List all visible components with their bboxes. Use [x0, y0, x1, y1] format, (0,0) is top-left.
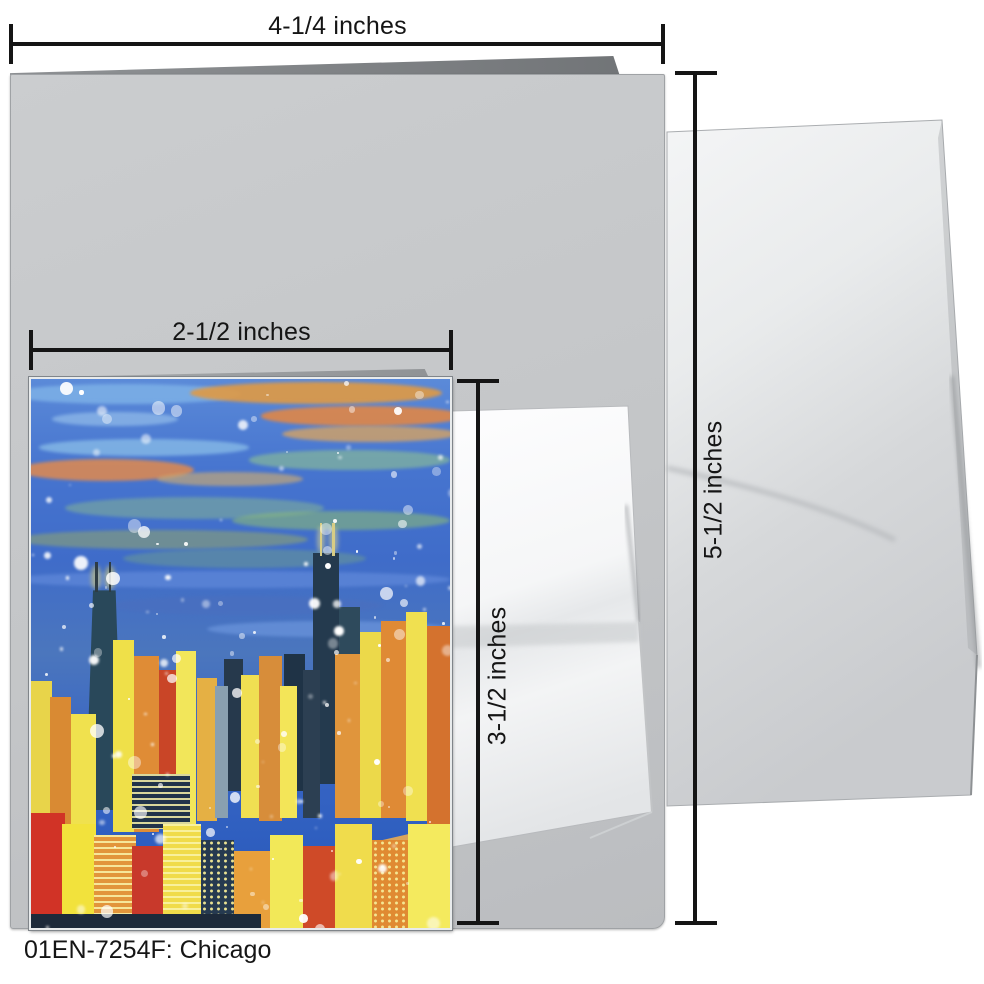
snow-dot — [151, 743, 154, 746]
snow-dot — [62, 625, 66, 629]
snow-dot — [325, 703, 329, 707]
snow-dot — [182, 903, 188, 909]
painting-building — [408, 824, 450, 928]
snow-dot — [393, 557, 396, 560]
snow-dot — [226, 826, 228, 828]
snow-dot — [181, 598, 184, 601]
snow-dot — [296, 799, 301, 804]
envelope-small — [440, 400, 665, 855]
sky-streak — [261, 406, 450, 425]
snow-dot — [416, 576, 426, 586]
product-mockup: 4-1/4 inches 5-1/2 inches 2-1/2 inches 3… — [0, 0, 984, 984]
snow-dot — [334, 871, 337, 874]
snow-dot — [218, 601, 223, 606]
snow-dot — [134, 806, 147, 819]
snow-dot — [432, 467, 441, 476]
snow-dot — [103, 807, 110, 814]
snow-dot — [406, 882, 409, 885]
dimension-line — [10, 42, 665, 46]
snow-dot — [448, 488, 450, 498]
snow-dot — [378, 644, 381, 647]
snow-dot — [270, 815, 273, 818]
snow-dot — [160, 659, 168, 667]
snow-dot — [448, 586, 450, 590]
snow-dot — [320, 523, 332, 535]
snow-dot — [318, 814, 321, 817]
painting-building — [372, 840, 410, 928]
snow-dot — [155, 834, 165, 844]
snow-dot — [74, 556, 88, 570]
snow-dot — [44, 552, 52, 560]
snow-dot — [403, 786, 413, 796]
snow-dot — [230, 792, 241, 803]
snow-dot — [251, 416, 257, 422]
snow-dot — [278, 743, 287, 752]
snow-dot — [394, 629, 405, 640]
snow-dot — [209, 807, 211, 809]
snow-dot — [337, 452, 339, 454]
snow-dot — [220, 519, 222, 521]
snow-dot — [304, 562, 308, 566]
sky-streak — [31, 530, 308, 549]
snow-dot — [438, 455, 442, 459]
snow-dot — [105, 586, 107, 588]
dimension-tick-bottom — [675, 921, 717, 925]
snow-dot — [77, 905, 86, 914]
snow-dot — [45, 673, 48, 676]
snow-dot — [374, 616, 376, 618]
painting-building — [335, 824, 373, 928]
snow-dot — [442, 622, 445, 625]
painting-building — [259, 656, 282, 821]
snow-dot — [146, 611, 149, 614]
dimension-tick-left — [9, 24, 13, 64]
painting-building — [303, 846, 337, 928]
snow-dot — [330, 872, 338, 880]
snow-dot — [344, 381, 349, 386]
sky-streak — [232, 511, 450, 530]
snow-dot — [158, 783, 163, 788]
dimension-label-card-width: 4-1/4 inches — [10, 12, 665, 41]
snow-dot — [99, 820, 105, 826]
snow-dot — [394, 551, 398, 555]
snow-dot — [79, 390, 83, 394]
snow-dot — [89, 603, 94, 608]
snow-dot — [423, 608, 425, 610]
snow-dot — [238, 420, 248, 430]
snow-dot — [328, 638, 339, 649]
product-code: 01EN-7254F: Chicago — [24, 936, 271, 965]
snow-dot — [165, 575, 170, 580]
snow-dot — [141, 434, 152, 445]
snow-dot — [232, 688, 242, 698]
snow-dot — [250, 892, 255, 897]
snow-dot — [349, 406, 355, 412]
snow-dot — [334, 626, 344, 636]
sky-streak — [157, 472, 304, 486]
snow-dot — [184, 542, 188, 546]
snow-dot — [380, 587, 393, 600]
snow-dot — [331, 850, 333, 852]
painting-building — [163, 824, 201, 928]
sky-streak — [190, 382, 441, 404]
snow-dot — [262, 761, 264, 763]
snow-dot — [239, 633, 245, 639]
snow-dot — [400, 599, 408, 607]
snow-dot — [156, 613, 158, 615]
snow-dot — [299, 914, 308, 923]
snow-dot — [250, 868, 252, 870]
painting-building — [280, 686, 297, 818]
snow-dot — [262, 901, 265, 904]
painting-building — [31, 914, 261, 928]
antenna — [95, 562, 98, 592]
painting-building — [215, 686, 228, 818]
snow-dot — [202, 600, 210, 608]
snow-dot — [46, 926, 49, 928]
snow-dot — [162, 635, 166, 639]
snow-dot — [152, 401, 165, 414]
painting-building — [241, 675, 262, 818]
snow-dot — [415, 391, 423, 399]
snow-dot — [144, 713, 146, 715]
painting-building — [197, 678, 218, 821]
snow-dot — [403, 505, 413, 515]
snow-dot — [32, 554, 34, 556]
snow-dot — [112, 754, 116, 758]
snow-dot — [281, 731, 287, 737]
snow-dot — [392, 844, 396, 848]
card-back-fold-edge — [10, 56, 632, 75]
painting-building — [113, 640, 134, 832]
snow-dot — [230, 651, 234, 655]
snow-dot — [446, 401, 448, 403]
painting-building — [360, 632, 381, 819]
snow-dot — [386, 658, 390, 662]
snow-dot — [66, 576, 69, 579]
painting-building — [270, 835, 304, 928]
snow-dot — [69, 484, 71, 486]
painting-building — [335, 654, 360, 819]
antenna — [332, 523, 335, 556]
envelope-large-body — [667, 120, 977, 806]
snow-dot — [338, 873, 340, 875]
painting-building — [303, 670, 320, 818]
snow-dot — [93, 449, 100, 456]
snow-dot — [128, 756, 141, 769]
snow-dot — [206, 828, 215, 837]
snow-dot — [333, 600, 340, 607]
painting-building — [31, 813, 65, 928]
snow-dot — [356, 859, 362, 865]
snow-dot — [308, 694, 313, 699]
snow-dot — [152, 833, 154, 835]
snow-dot — [315, 827, 317, 829]
dimension-tick-top — [675, 71, 717, 75]
snow-dot — [60, 647, 63, 650]
snow-dot — [141, 870, 148, 877]
snow-dot — [346, 445, 350, 449]
snow-dot — [46, 497, 52, 503]
card-front — [29, 377, 452, 930]
sky-streak — [282, 426, 450, 442]
card-front-artwork — [31, 379, 450, 928]
snow-dot — [417, 544, 422, 549]
snow-dot — [171, 405, 182, 416]
dimension-tick-right — [661, 24, 665, 64]
snow-dot — [337, 731, 341, 735]
snow-dot — [356, 550, 359, 553]
snow-dot — [442, 645, 450, 656]
snow-dot — [279, 466, 285, 472]
snow-dot — [398, 520, 407, 529]
snow-dot — [405, 585, 407, 587]
snow-dot — [391, 471, 397, 477]
